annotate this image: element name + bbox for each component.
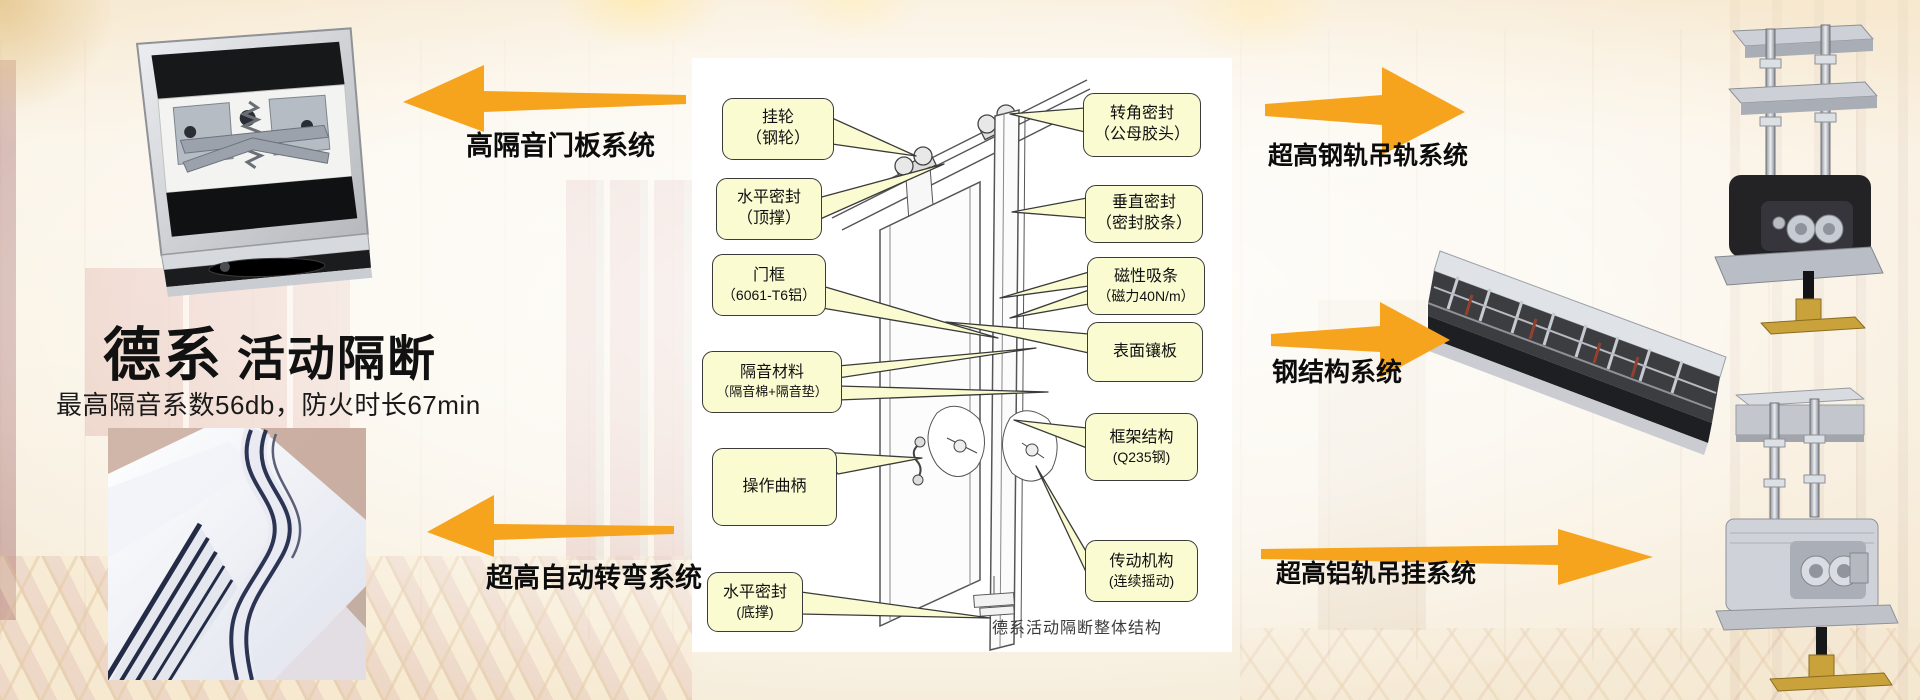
callout-corner-seal: 转角密封 （公母胶头） bbox=[1083, 93, 1201, 157]
photo-steel-track-hanger bbox=[1703, 5, 1910, 335]
callout-line: 传动机构 bbox=[1109, 552, 1173, 573]
callout-magnetic-strip: 磁性吸条 （磁力40N/m） bbox=[1087, 257, 1205, 315]
callout-line: （钢轮） bbox=[746, 129, 810, 150]
brand-title: 德系活动隔断 bbox=[103, 308, 437, 392]
callout-line: 表面镶板 bbox=[1113, 342, 1177, 363]
callout-line: （公母胶头） bbox=[1094, 125, 1190, 146]
photo-door-panel-mechanism bbox=[103, 10, 395, 300]
callout-line: 操作曲柄 bbox=[742, 477, 806, 498]
callout-line: （磁力40N/m） bbox=[1097, 287, 1194, 305]
brand-title-secondary: 活动隔断 bbox=[237, 333, 437, 386]
callout-horizontal-seal-bottom: 水平密封 (底撑) bbox=[707, 572, 803, 632]
system-label-steel-rail: 超高钢轨吊轨系统 bbox=[1268, 136, 1468, 172]
slide-stage: 德系活动隔断 最高隔音系数56db，防火时长67min bbox=[0, 0, 1920, 700]
callout-hanging-wheel: 挂轮 （钢轮） bbox=[722, 98, 834, 160]
system-label-door-panel: 高隔音门板系统 bbox=[466, 124, 655, 163]
photo-alu-track-hanger bbox=[1698, 383, 1916, 700]
callout-line: （顶撑） bbox=[737, 209, 801, 230]
callout-line: （密封胶条） bbox=[1096, 214, 1192, 235]
system-label-steel-structure: 钢结构系统 bbox=[1272, 352, 1402, 389]
brand-subtitle: 最高隔音系数56db，防火时长67min bbox=[56, 385, 481, 422]
callout-vertical-seal: 垂直密封 （密封胶条） bbox=[1085, 185, 1203, 243]
callout-drive-mechanism: 传动机构 (连续摇动) bbox=[1085, 540, 1198, 602]
callout-line: (连续摇动) bbox=[1109, 572, 1174, 590]
brand-title-primary: 德系 bbox=[103, 323, 223, 388]
callout-line: （隔音棉+隔音垫） bbox=[716, 384, 828, 401]
callout-line: (Q235钢) bbox=[1113, 448, 1171, 466]
diagram-panel: 挂轮 （钢轮） 水平密封 （顶撑） 门框 （6061-T6铝） 隔音材料 （隔音… bbox=[692, 58, 1232, 652]
callout-horizontal-seal-top: 水平密封 （顶撑） bbox=[716, 178, 822, 240]
callout-line: （6061-T6铝） bbox=[722, 286, 816, 304]
callout-surface-panel: 表面镶板 bbox=[1087, 322, 1203, 382]
callout-operating-crank: 操作曲柄 bbox=[712, 448, 837, 526]
callout-door-frame: 门框 （6061-T6铝） bbox=[712, 254, 826, 316]
callout-line: 门框 bbox=[753, 266, 785, 287]
callout-frame-structure: 框架结构 (Q235钢) bbox=[1085, 413, 1198, 481]
callout-line: 垂直密封 bbox=[1112, 193, 1176, 214]
callout-sound-insulation: 隔音材料 （隔音棉+隔音垫） bbox=[702, 351, 842, 413]
photo-steel-structure-frame bbox=[1428, 237, 1733, 472]
callout-line: 水平密封 bbox=[737, 188, 801, 209]
callout-line: 水平密封 bbox=[723, 583, 787, 604]
system-label-alu-rail: 超高铝轨吊挂系统 bbox=[1276, 554, 1476, 590]
callout-line: 框架结构 bbox=[1109, 428, 1173, 449]
callout-line: 磁性吸条 bbox=[1114, 267, 1178, 288]
callout-line: (底撑) bbox=[736, 603, 773, 621]
diagram-caption: 德系活动隔断整体结构 bbox=[992, 614, 1162, 638]
photo-curved-track bbox=[108, 428, 366, 680]
callout-line: 挂轮 bbox=[762, 108, 794, 129]
system-label-auto-turn: 超高自动转弯系统 bbox=[486, 556, 702, 595]
callout-line: 转角密封 bbox=[1110, 104, 1174, 125]
arrow-left-bottom bbox=[424, 490, 676, 560]
callout-line: 隔音材料 bbox=[740, 363, 804, 384]
